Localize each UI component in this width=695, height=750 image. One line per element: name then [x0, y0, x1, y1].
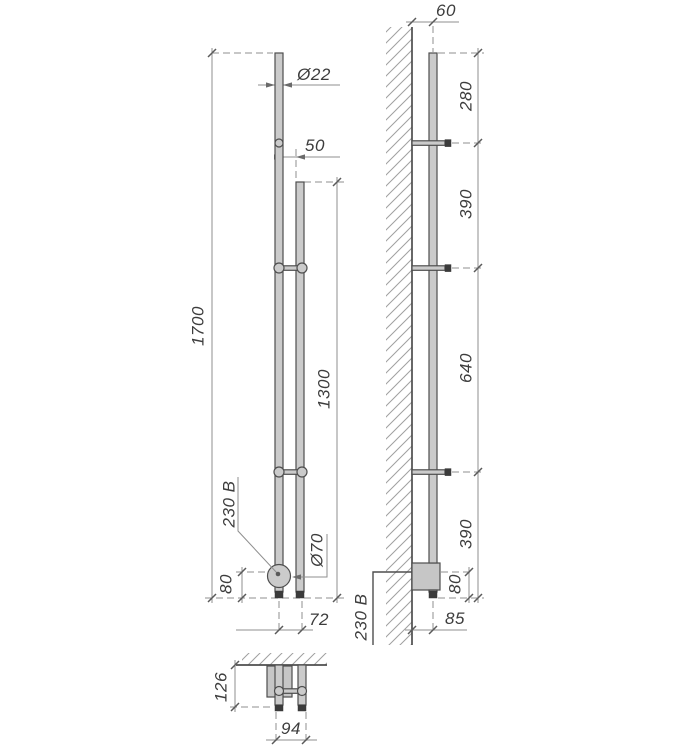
connection-box — [412, 563, 440, 590]
dim-segment-280: 280 — [456, 81, 475, 112]
dim-segment-390-upper: 390 — [456, 189, 475, 219]
second-tube — [296, 182, 304, 592]
wall-standoff-upper — [275, 139, 283, 147]
bracket-cap — [445, 469, 451, 476]
dim-wall-depth: 85 — [445, 609, 465, 628]
tube-side-end-cap — [429, 591, 437, 598]
tube1-end-cap — [275, 591, 283, 598]
dim-bottom-offset-side: 80 — [445, 574, 464, 594]
dim-overall-height: 1700 — [188, 306, 207, 346]
main-tube — [275, 53, 283, 592]
dim-segment-640: 640 — [456, 353, 475, 383]
dim-depth-top: 126 — [211, 672, 230, 702]
standoff-top-left — [275, 687, 284, 696]
arrow — [266, 82, 275, 87]
wall-bracket-1 — [412, 140, 451, 147]
standoff-mid-right — [297, 263, 307, 273]
dim-unit-diameter: Ø70 — [307, 533, 326, 568]
tube2-top-cap — [298, 705, 306, 711]
dim-unit-bottom-offset: 80 — [216, 574, 235, 594]
label-voltage-front: 230 В — [219, 481, 238, 529]
dim-wall-offset: 60 — [436, 1, 456, 20]
side-view: 60 230 В 280 390 640 390 — [351, 1, 484, 645]
dim-rail-height: 1300 — [314, 369, 333, 409]
arrow — [296, 154, 305, 159]
dim-tube-gap: 50 — [305, 136, 325, 155]
dim-tube-diameter: Ø22 — [296, 65, 331, 84]
bracket-cap — [445, 140, 451, 147]
standoff-low-right — [297, 467, 307, 477]
front-view: 1700 1300 Ø22 50 230 В — [188, 48, 346, 634]
tube-side — [429, 53, 437, 563]
leader-230v-front — [238, 477, 278, 574]
label-voltage-side: 230 В — [351, 594, 370, 642]
dim-tube-axis-spacing: 72 — [309, 610, 329, 629]
bracket-arm — [412, 141, 445, 146]
top-view: 126 94 — [211, 653, 327, 744]
tube2-end-cap — [296, 591, 304, 598]
tube2-top — [298, 665, 306, 705]
wall-bracket-2 — [412, 265, 451, 272]
wall-hatch-top — [242, 653, 327, 665]
bracket-arm — [412, 470, 445, 475]
technical-drawing: 1700 1300 Ø22 50 230 В — [0, 0, 695, 750]
leader-dot — [276, 572, 281, 577]
drawing-canvas: 1700 1300 Ø22 50 230 В — [0, 0, 695, 750]
arrow — [283, 82, 292, 87]
standoff-low-left — [274, 467, 284, 477]
bracket-cap — [445, 265, 451, 272]
dim-segment-390-lower: 390 — [456, 519, 475, 549]
tube1-top-cap — [275, 705, 283, 711]
standoff-mid-left — [274, 263, 284, 273]
wall-hatch-side — [386, 27, 412, 645]
tube1-top — [275, 665, 283, 705]
wall-bracket-3 — [412, 469, 451, 476]
bracket-arm — [412, 266, 445, 271]
standoff-top-right — [298, 687, 307, 696]
dim-width-top: 94 — [281, 719, 301, 738]
